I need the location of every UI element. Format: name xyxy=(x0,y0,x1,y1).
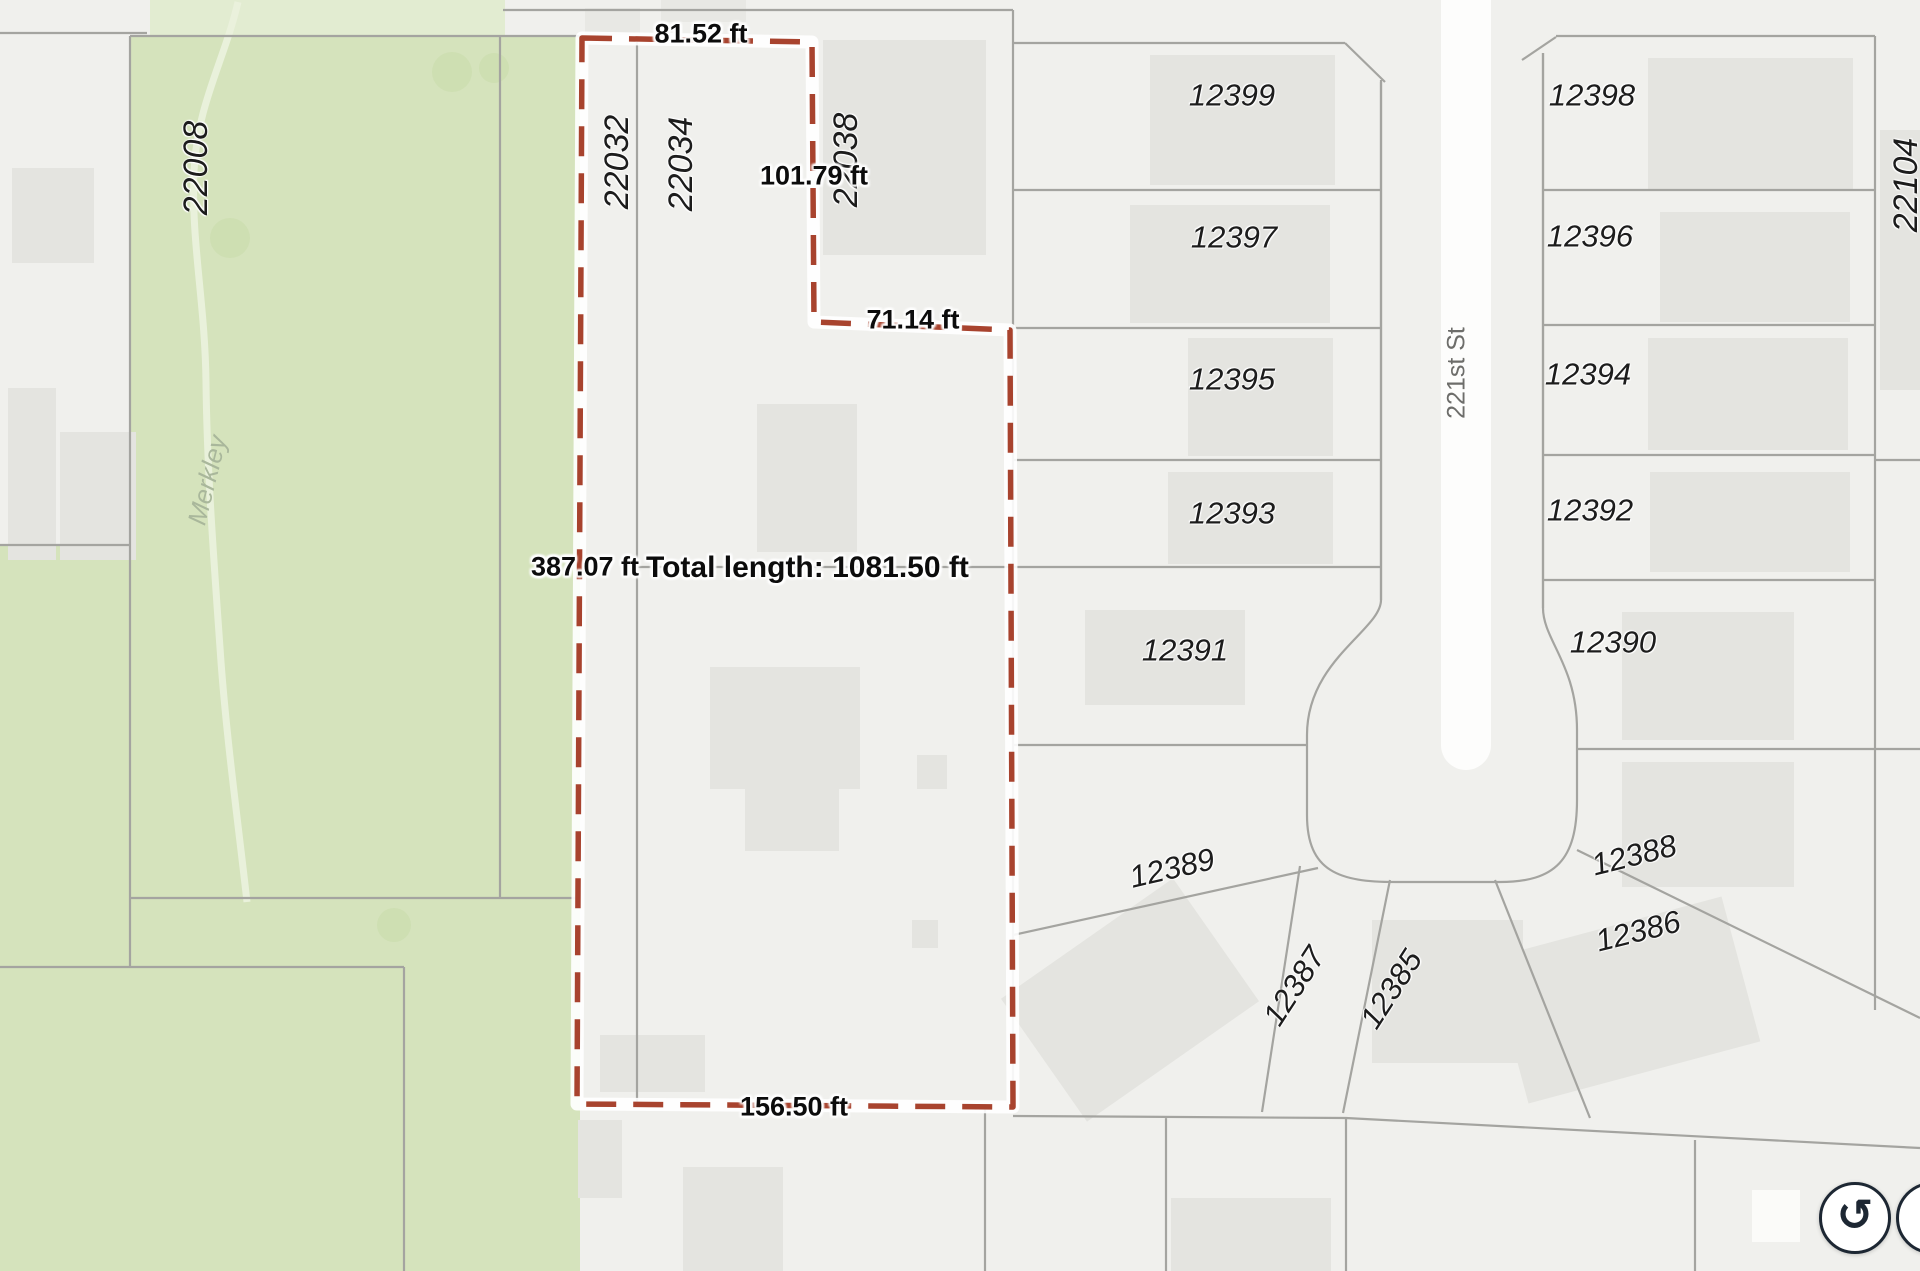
reset-rotation-icon: ↺ xyxy=(1837,1194,1874,1238)
parcel-label-12394: 12394 xyxy=(1545,359,1631,390)
parcel-label-22104: 22104 xyxy=(1889,138,1920,233)
tree-icon xyxy=(377,908,411,942)
parcel-label-12391: 12391 xyxy=(1142,635,1228,666)
parcel-label-12393: 12393 xyxy=(1189,498,1275,529)
parcel-label-22034: 22034 xyxy=(664,117,698,212)
measure-label-left: 387.07 ft xyxy=(531,554,639,581)
parcel-label-22008: 22008 xyxy=(179,121,213,216)
parcel-label-22032: 22032 xyxy=(600,115,634,210)
parcel-label-12398: 12398 xyxy=(1549,80,1635,111)
tree-icon xyxy=(432,52,472,92)
parcel-label-12395: 12395 xyxy=(1189,364,1275,395)
tree-icon xyxy=(479,53,509,83)
parcel-label-12399: 12399 xyxy=(1189,80,1275,111)
street-name-label: 221st St xyxy=(1445,327,1470,419)
parcel-label-12396: 12396 xyxy=(1547,221,1633,252)
parcel-label-12390: 12390 xyxy=(1570,627,1656,658)
tree-icon xyxy=(210,218,250,258)
measure-label-top: 81.52 ft xyxy=(654,21,747,48)
measure-label-notch: 71.14 ft xyxy=(866,307,959,334)
map-canvas[interactable]: 22008 Merkley 22032 22034 22038 22104 22… xyxy=(0,0,1920,1271)
reset-view-button[interactable]: ↺ xyxy=(1819,1182,1891,1254)
measure-label-bottom: 156.50 ft xyxy=(740,1094,848,1121)
parcel-label-12397: 12397 xyxy=(1191,222,1277,253)
measure-label-upper-right: 101.79 ft xyxy=(760,163,868,190)
measure-total-label: Total length: 1081.50 ft xyxy=(646,553,969,583)
parcel-label-12392: 12392 xyxy=(1547,495,1633,526)
